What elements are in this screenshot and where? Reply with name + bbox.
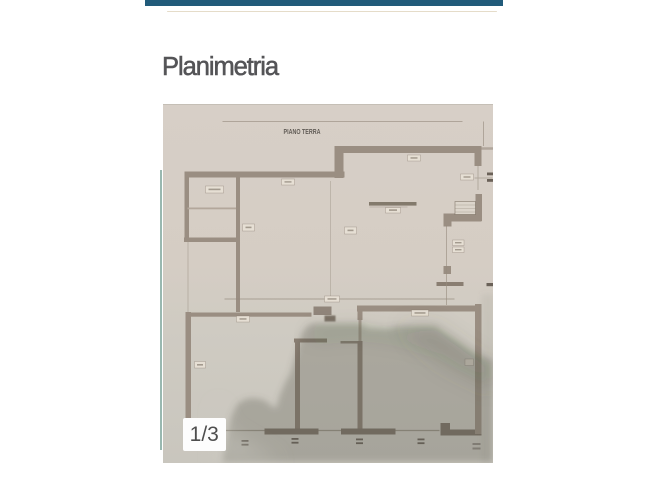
svg-text:PIANO TERRA: PIANO TERRA — [283, 129, 320, 136]
